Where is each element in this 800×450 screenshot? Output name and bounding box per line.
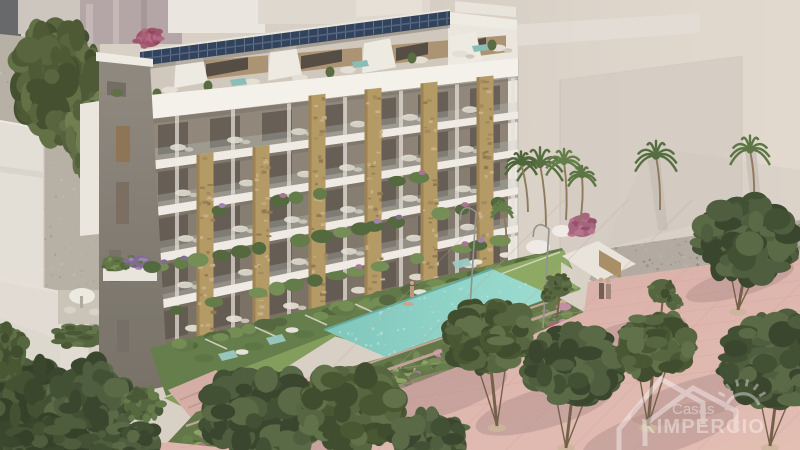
svg-text:KIMPERCIO: KIMPERCIO — [641, 416, 765, 438]
